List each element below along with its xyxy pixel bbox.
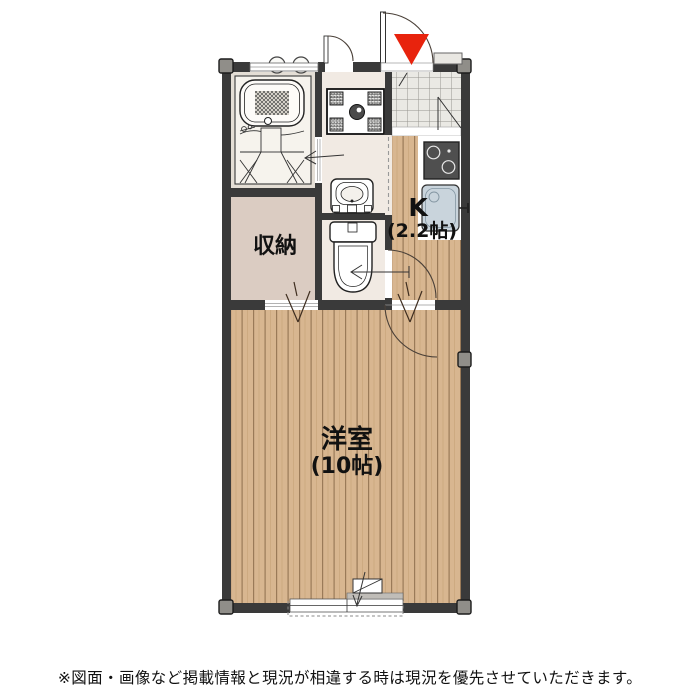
bathroom-window	[250, 63, 318, 71]
window-panel	[347, 593, 403, 599]
entrance-step	[392, 127, 461, 136]
western-room-label: 洋室	[321, 424, 373, 455]
floorplan-image: 収納 K (2.2帖) 洋室 (10帖) ※図面・画像など掲載情報と現況が相違す…	[0, 0, 700, 700]
kitchen-size-label: (2.2帖)	[387, 219, 457, 242]
disclaimer-text: ※図面・画像など掲載情報と現況が相違する時は現況を優先させていただきます。	[0, 666, 700, 688]
washbasin-icon	[331, 179, 373, 213]
washroom-service-door	[324, 36, 353, 63]
western-room-size-label: (10帖)	[311, 454, 384, 479]
washing-machine-icon	[327, 89, 384, 134]
storage-label: 収納	[253, 233, 297, 259]
stove-icon	[424, 142, 459, 179]
toilet-icon	[330, 222, 376, 292]
entrance-marker-icon	[394, 34, 429, 65]
meter-box	[434, 53, 462, 64]
bathtub-icon	[240, 80, 304, 126]
kitchen-label: K	[408, 193, 429, 222]
floorplan-svg: 収納 K (2.2帖) 洋室 (10帖)	[0, 0, 700, 700]
